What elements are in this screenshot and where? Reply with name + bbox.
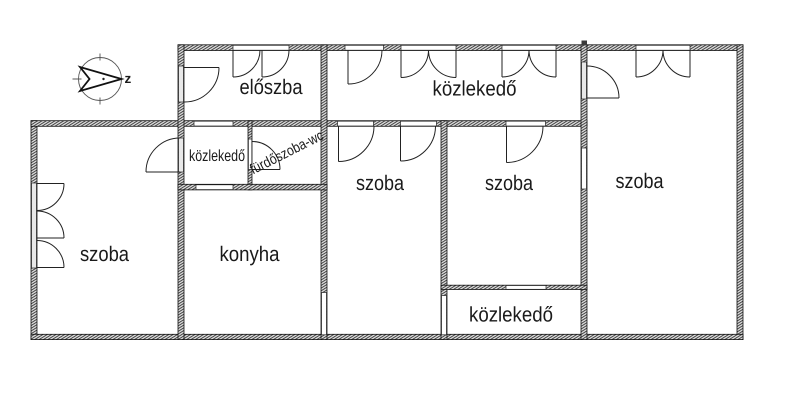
svg-text:szoba: szoba <box>616 170 664 193</box>
svg-text:konyha: konyha <box>220 243 280 266</box>
svg-text:szoba: szoba <box>356 172 404 195</box>
svg-text:közlekedő: közlekedő <box>433 78 517 101</box>
svg-text:közlekedő: közlekedő <box>469 303 553 326</box>
svg-text:közlekedő: közlekedő <box>189 148 245 165</box>
svg-text:szoba: szoba <box>80 243 129 266</box>
svg-text:előszba: előszba <box>240 76 303 99</box>
svg-text:szoba: szoba <box>485 172 533 195</box>
svg-text:z: z <box>125 71 132 86</box>
